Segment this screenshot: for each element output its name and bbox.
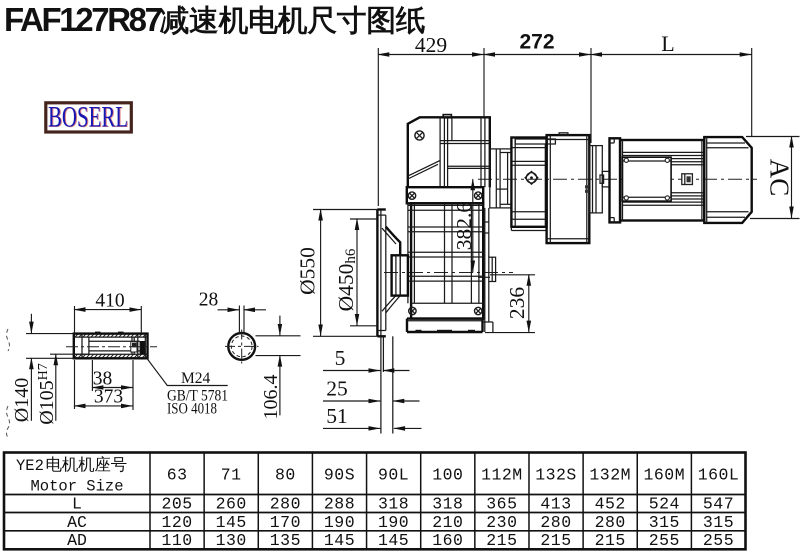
svg-text:413: 413	[540, 495, 571, 514]
svg-text:ISO 4018: ISO 4018	[167, 401, 217, 418]
svg-text:429: 429	[415, 33, 447, 57]
svg-text:280: 280	[270, 495, 301, 514]
svg-text:5: 5	[335, 346, 346, 370]
svg-text:L: L	[661, 31, 674, 56]
svg-text:112M: 112M	[481, 466, 523, 485]
svg-text:288: 288	[324, 495, 355, 514]
svg-text:215: 215	[486, 531, 517, 550]
svg-text:Ø550: Ø550	[296, 247, 320, 295]
svg-text:280: 280	[540, 513, 571, 532]
svg-text:255: 255	[703, 531, 734, 550]
svg-text:190: 190	[378, 513, 409, 532]
svg-text:280: 280	[595, 513, 626, 532]
svg-text:130: 130	[216, 531, 247, 550]
svg-text:90L: 90L	[378, 466, 409, 485]
svg-text:272: 272	[519, 31, 554, 54]
svg-text:160L: 160L	[698, 466, 740, 485]
svg-text:215: 215	[540, 531, 571, 550]
svg-text:260: 260	[216, 495, 247, 514]
svg-text:90S: 90S	[324, 466, 355, 485]
svg-text:145: 145	[216, 513, 247, 532]
svg-text:145: 145	[324, 531, 355, 550]
svg-text:51: 51	[326, 404, 348, 428]
svg-text:100: 100	[432, 466, 463, 485]
svg-text:Ø105H7: Ø105H7	[36, 363, 58, 425]
svg-text:236: 236	[505, 287, 529, 320]
svg-text:255: 255	[649, 531, 680, 550]
svg-text:110: 110	[161, 531, 192, 550]
svg-text:FAF127R87: FAF127R87	[4, 1, 163, 38]
svg-text:170: 170	[270, 513, 301, 532]
svg-text:382.6: 382.6	[452, 202, 476, 251]
svg-text:318: 318	[378, 495, 409, 514]
svg-text:205: 205	[161, 495, 192, 514]
svg-text:BOSERL: BOSERL	[48, 101, 128, 134]
svg-text:28: 28	[199, 290, 219, 311]
svg-text:AD: AD	[67, 531, 87, 550]
svg-text:524: 524	[649, 495, 680, 514]
svg-text:Motor Size: Motor Size	[30, 478, 123, 496]
svg-text:25: 25	[326, 377, 348, 401]
svg-text:160: 160	[432, 531, 463, 550]
svg-text:190: 190	[324, 513, 355, 532]
svg-text:AC: AC	[67, 513, 87, 532]
svg-text:71: 71	[221, 466, 242, 485]
svg-text:315: 315	[649, 513, 680, 532]
svg-text:215: 215	[595, 531, 626, 550]
svg-text:365: 365	[486, 495, 517, 514]
svg-text:318: 318	[432, 495, 463, 514]
svg-text:AC: AC	[765, 159, 795, 197]
svg-text:315: 315	[703, 513, 734, 532]
svg-text:230: 230	[486, 513, 517, 532]
svg-text:80: 80	[275, 466, 296, 485]
svg-text:Ø140: Ø140	[11, 378, 33, 422]
svg-text:Ø450h6: Ø450h6	[334, 248, 359, 311]
svg-text:410: 410	[95, 291, 124, 312]
svg-text:132S: 132S	[535, 466, 577, 485]
svg-text:547: 547	[703, 495, 734, 514]
svg-text:160M: 160M	[643, 466, 685, 485]
svg-text:132M: 132M	[589, 466, 631, 485]
svg-text:452: 452	[595, 495, 626, 514]
svg-text:63: 63	[167, 466, 188, 485]
svg-text:120: 120	[161, 513, 192, 532]
svg-text:373: 373	[94, 387, 123, 408]
svg-text:106.4: 106.4	[260, 375, 282, 420]
svg-text:M24: M24	[181, 370, 211, 387]
svg-text:145: 145	[378, 531, 409, 550]
svg-text:210: 210	[432, 513, 463, 532]
svg-text:L: L	[72, 495, 82, 514]
svg-text:135: 135	[270, 531, 301, 550]
svg-text:YE2: YE2	[16, 457, 44, 475]
